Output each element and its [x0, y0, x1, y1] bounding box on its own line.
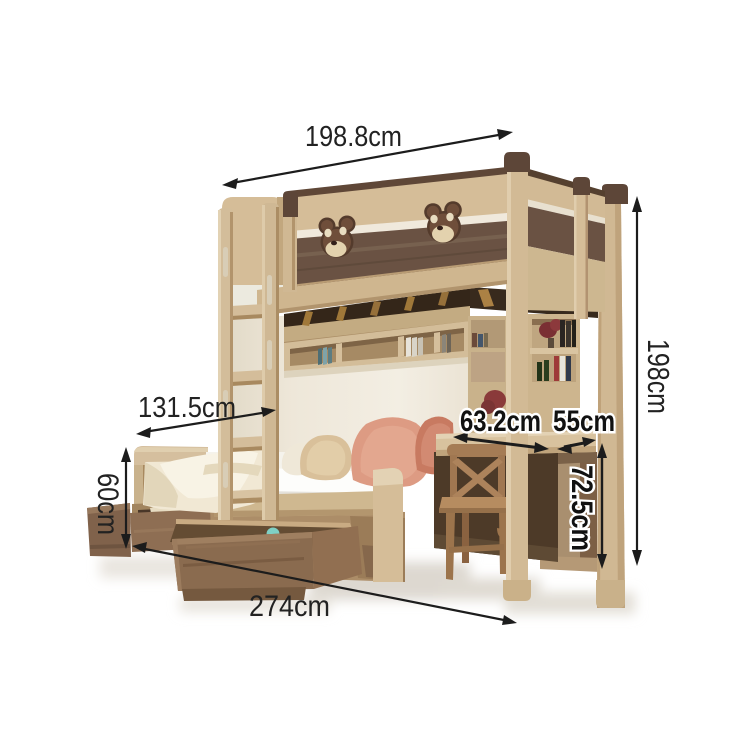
- svg-text:63.2cm: 63.2cm: [460, 405, 541, 438]
- svg-text:72.5cm: 72.5cm: [565, 465, 598, 551]
- svg-text:198cm: 198cm: [641, 339, 676, 414]
- svg-text:131.5cm: 131.5cm: [138, 392, 236, 424]
- svg-text:60cm: 60cm: [91, 473, 124, 535]
- svg-text:274cm: 274cm: [249, 590, 330, 623]
- svg-text:198.8cm: 198.8cm: [305, 121, 402, 153]
- svg-text:55cm: 55cm: [553, 405, 615, 438]
